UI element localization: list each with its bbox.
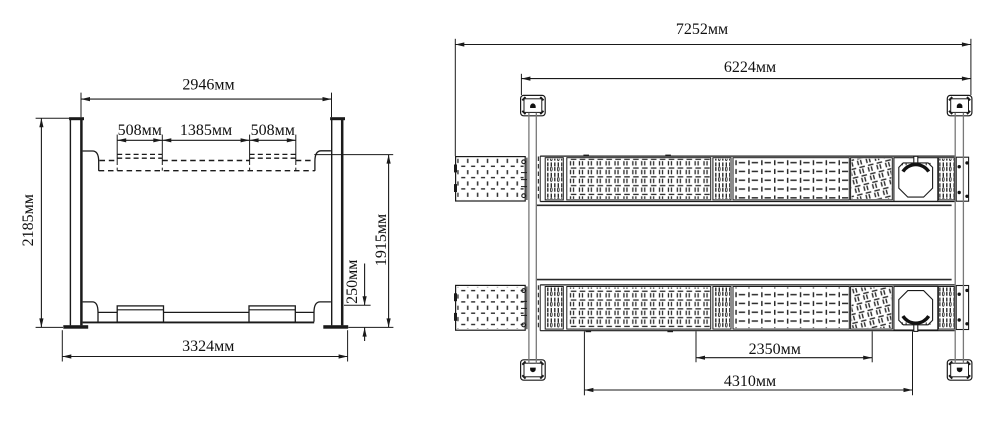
svg-text:2350мм: 2350мм [749, 341, 801, 358]
svg-text:508мм: 508мм [251, 122, 295, 139]
svg-text:4310мм: 4310мм [724, 373, 776, 390]
svg-text:508мм: 508мм [118, 122, 162, 139]
svg-text:3324мм: 3324мм [182, 338, 234, 355]
svg-text:1915мм: 1915мм [373, 214, 390, 266]
svg-text:2185мм: 2185мм [20, 194, 37, 246]
svg-text:250мм: 250мм [344, 260, 361, 304]
svg-text:1385мм: 1385мм [180, 122, 232, 139]
svg-text:6224мм: 6224мм [724, 59, 776, 76]
svg-text:7252мм: 7252мм [676, 21, 728, 38]
svg-text:2946мм: 2946мм [182, 77, 234, 94]
